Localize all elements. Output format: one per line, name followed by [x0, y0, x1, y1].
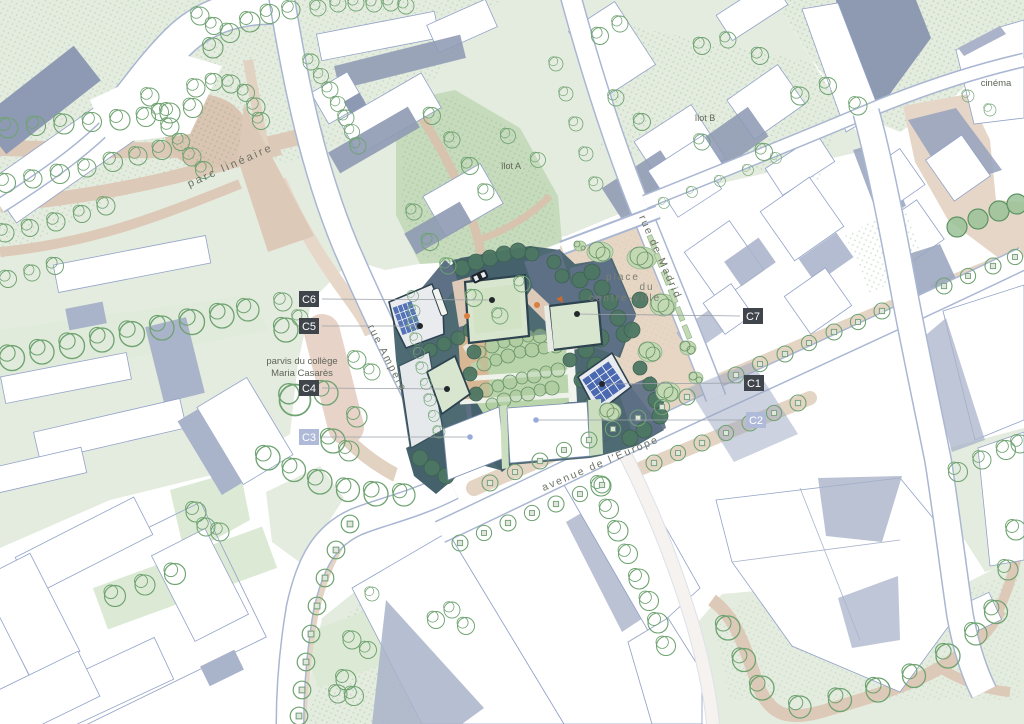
svg-text:C7: C7 [746, 311, 760, 323]
svg-text:place: place [606, 272, 640, 283]
svg-text:parvis du collège: parvis du collège [266, 356, 337, 367]
svg-text:C6: C6 [302, 294, 316, 306]
svg-text:cinéma: cinéma [981, 78, 1012, 89]
svg-text:centre-ville: centre-ville [589, 293, 661, 304]
svg-text:C3: C3 [302, 432, 316, 444]
svg-text:C4: C4 [302, 383, 316, 395]
svg-text:îlot B: îlot B [694, 113, 716, 123]
svg-text:C2: C2 [749, 415, 763, 427]
svg-text:îlot A: îlot A [500, 161, 521, 171]
svg-text:C5: C5 [302, 321, 316, 333]
svg-text:C1: C1 [747, 378, 761, 390]
svg-text:Maria Casarès: Maria Casarès [271, 368, 333, 379]
svg-text:du: du [639, 282, 654, 293]
